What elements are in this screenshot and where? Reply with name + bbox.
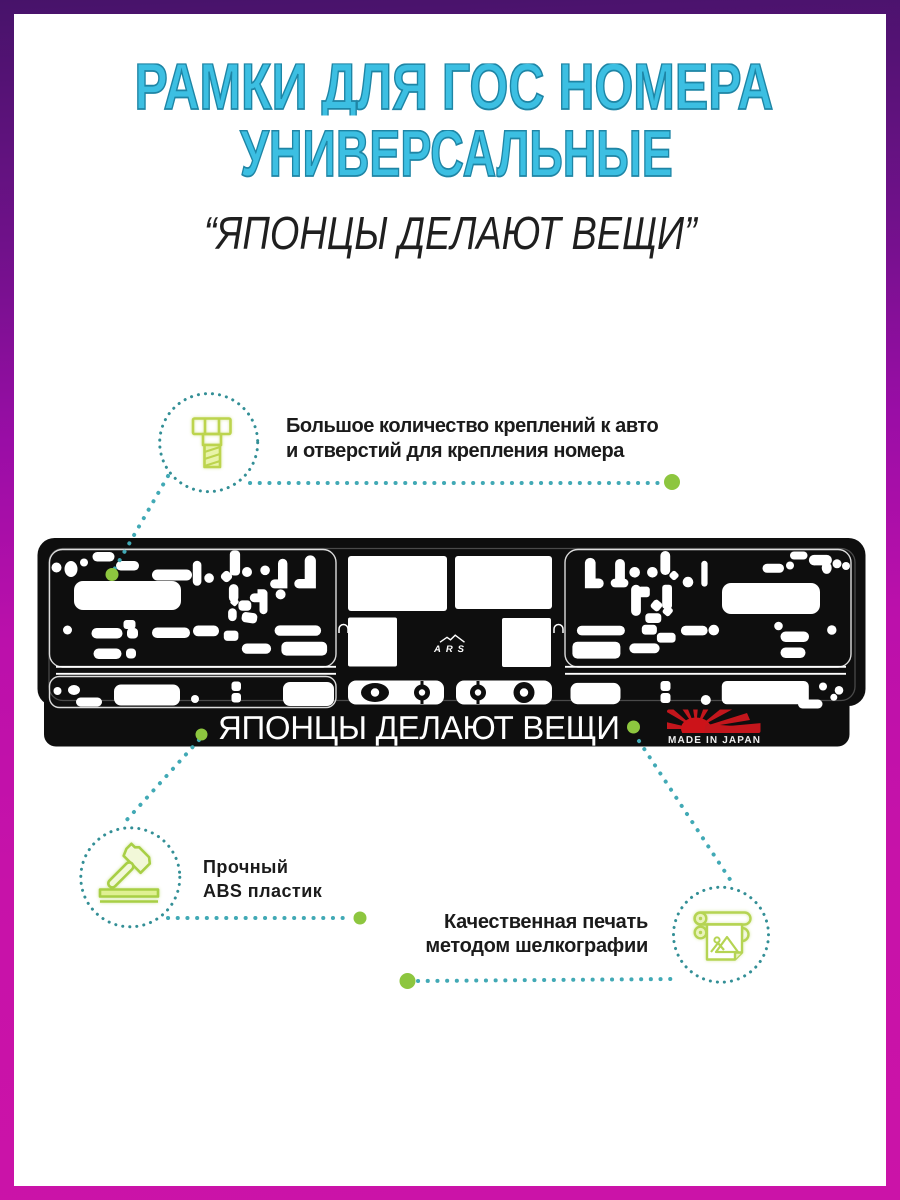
- svg-text:ЯПОНЦЫ ДЕЛАЮТ ВЕЩИ: ЯПОНЦЫ ДЕЛАЮТ ВЕЩИ: [218, 709, 621, 746]
- svg-text:ARS: ARS: [433, 644, 466, 655]
- svg-text:MADE IN JAPAN: MADE IN JAPAN: [668, 735, 760, 746]
